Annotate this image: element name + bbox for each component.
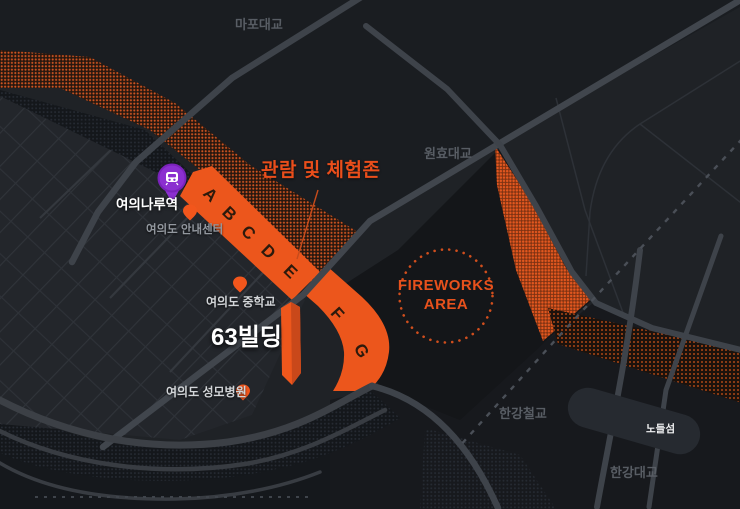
fireworks-line2: AREA bbox=[386, 296, 506, 315]
building63-tower bbox=[281, 302, 301, 385]
fireworks-line1: FIREWORKS bbox=[386, 277, 506, 296]
fireworks-festival-map: A B C D E F G 마포대교 원효대교 한강철교 한강대교 노들섬 여의… bbox=[0, 0, 740, 509]
info-center-label: 여의도 안내센터 bbox=[146, 224, 223, 237]
hospital-label: 여의도 성모병원 bbox=[166, 386, 247, 399]
station-label: 여의나루역 bbox=[116, 198, 178, 213]
mapo-bridge-label: 마포대교 bbox=[235, 18, 283, 32]
wonhyo-bridge-label: 원효대교 bbox=[424, 147, 472, 161]
fireworks-area-label: FIREWORKS AREA bbox=[386, 277, 506, 315]
nodeul-island-label: 노들섬 bbox=[646, 424, 675, 436]
middle-school-label: 여의도 중학교 bbox=[206, 296, 276, 309]
rail-bridge-label: 한강철교 bbox=[499, 407, 547, 421]
hangang-bridge-label: 한강대교 bbox=[610, 466, 658, 480]
map-canvas bbox=[0, 0, 740, 509]
building63-label: 63빌딩 bbox=[211, 325, 282, 351]
zone-title: 관람 및 체험존 bbox=[261, 161, 380, 182]
